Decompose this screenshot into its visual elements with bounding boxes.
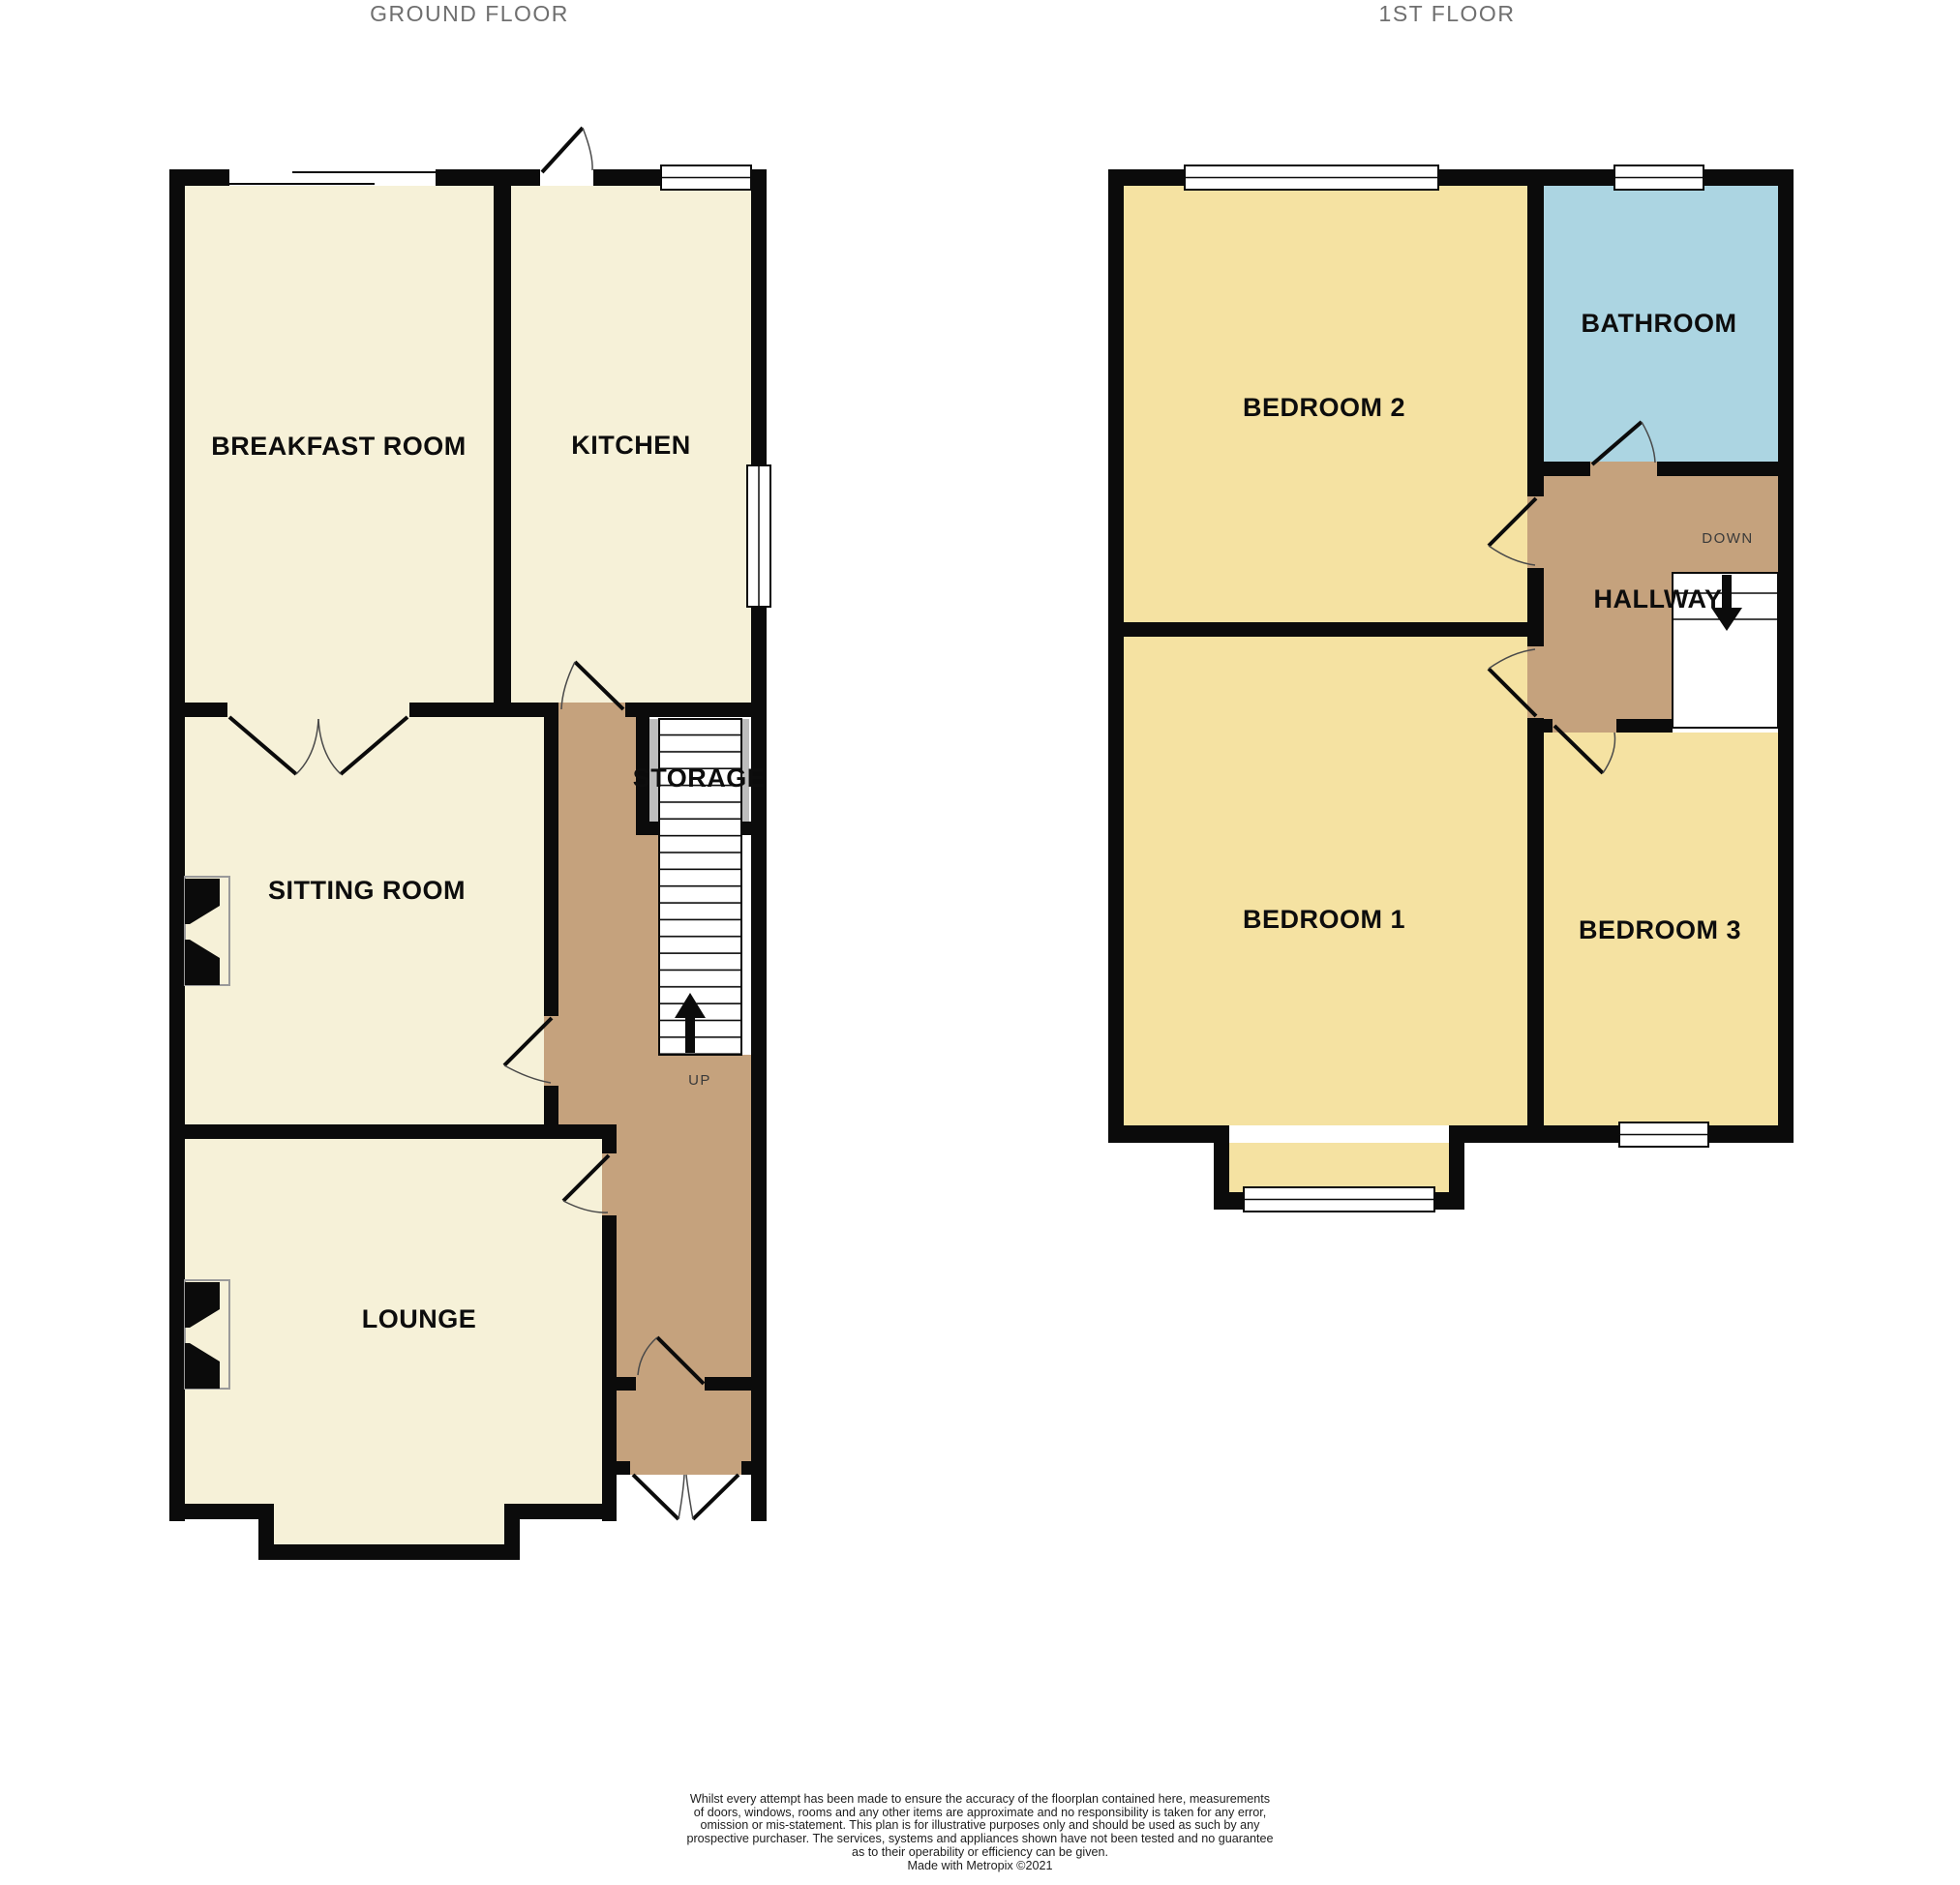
room-bedroom1 <box>1124 637 1527 1125</box>
wall-segment <box>751 169 767 465</box>
wall-segment <box>617 1461 630 1475</box>
room-label-bedroom2: BEDROOM 2 <box>1243 393 1405 422</box>
room-label-sitting: SITTING ROOM <box>268 876 466 905</box>
up-arrow-icon <box>685 1016 695 1053</box>
wall-segment <box>741 1461 751 1475</box>
disclaimer-line: Whilst every attempt has been made to en… <box>0 1793 1960 1807</box>
disclaimer-text: Whilst every attempt has been made to en… <box>0 1793 1960 1872</box>
room-sitting <box>185 717 544 1124</box>
room-lounge-bay <box>274 1504 504 1544</box>
wall-segment <box>1434 1192 1464 1210</box>
wall-segment <box>602 1139 617 1153</box>
first-floor-plan: 1ST FLOOR <box>1108 1 1794 1212</box>
wall-segment <box>1464 1125 1619 1143</box>
wall-segment <box>1527 568 1544 646</box>
wall-segment <box>1527 718 1544 1125</box>
wall-segment <box>1124 622 1527 637</box>
wall-segment <box>625 703 767 717</box>
stair-label-up: UP <box>688 1072 711 1089</box>
wall-segment <box>520 1504 617 1519</box>
wall-segment <box>504 1504 520 1560</box>
wall-segment <box>409 703 558 717</box>
room-hallway-ground <box>558 717 636 1124</box>
wall-segment <box>169 169 229 186</box>
room-label-bathroom: BATHROOM <box>1582 309 1737 338</box>
disclaimer-line: omission or mis-statement. This plan is … <box>0 1819 1960 1833</box>
ground-floor-plan: GROUND FLOOR <box>169 1 770 1560</box>
wall-segment <box>1616 719 1673 733</box>
stair-label-down: DOWN <box>1702 530 1754 547</box>
wall-segment <box>1527 462 1590 476</box>
wall-segment <box>602 1377 636 1391</box>
wall-segment <box>1438 169 1614 186</box>
wall-segment <box>636 822 660 835</box>
wall-segment <box>1708 1125 1794 1143</box>
room-label-bedroom1: BEDROOM 1 <box>1243 905 1405 934</box>
room-label-lounge: LOUNGE <box>362 1304 477 1333</box>
room-label-hallway: HALLWAY <box>1593 584 1722 613</box>
room-label-breakfast: BREAKFAST ROOM <box>211 432 467 461</box>
wall-segment <box>169 1504 274 1519</box>
room-hallway-first <box>1544 476 1778 573</box>
wall-segment <box>544 717 558 1016</box>
wall-segment <box>705 1377 751 1391</box>
wall-segment <box>494 169 511 717</box>
wall-segment <box>593 169 661 186</box>
wall-segment <box>1108 169 1124 1143</box>
disclaimer-line: prospective purchaser. The services, sys… <box>0 1833 1960 1846</box>
wall-segment <box>169 169 185 1521</box>
opening-kitchen-door <box>558 703 625 717</box>
room-label-storage: STORAGE <box>633 763 766 793</box>
wall-segment <box>436 169 540 186</box>
floorplan-canvas: GROUND FLOOR <box>0 0 1960 1885</box>
wall-segment <box>169 1124 617 1139</box>
room-hallway-ground <box>659 1055 751 1124</box>
wall-segment <box>1527 169 1544 496</box>
wall-segment <box>1214 1192 1244 1210</box>
disclaimer-line: of doors, windows, rooms and any other i… <box>0 1807 1960 1820</box>
wall-segment <box>1544 719 1553 733</box>
wall-segment <box>739 822 767 835</box>
ground-floor-title: GROUND FLOOR <box>370 1 569 26</box>
opening-bathroom-door <box>1590 462 1657 476</box>
wall-segment <box>1108 1125 1214 1143</box>
wall-segment <box>1108 169 1185 186</box>
room-label-bedroom3: BEDROOM 3 <box>1579 915 1741 944</box>
wall-segment <box>169 703 227 717</box>
room-hallway-ground <box>617 1124 751 1461</box>
first-floor-title: 1ST FLOOR <box>1379 1 1516 26</box>
wall-segment <box>1778 169 1794 1143</box>
door-front-double <box>633 1475 739 1519</box>
opening-double-door <box>227 703 409 717</box>
room-label-kitchen: KITCHEN <box>571 431 691 460</box>
door-kitchen-exterior <box>542 128 592 172</box>
opening-inner-front-door <box>636 1377 705 1391</box>
opening-sitting-door <box>544 1016 558 1086</box>
credit-line: Made with Metropix ©2021 <box>0 1860 1960 1873</box>
room-hallway-ground <box>636 835 659 1124</box>
opening-lounge-door <box>602 1153 617 1215</box>
wall-segment <box>751 607 767 1521</box>
disclaimer-line: as to their operability or efficiency ca… <box>0 1846 1960 1860</box>
opening-bedroom3-door <box>1553 719 1616 733</box>
wall-segment <box>258 1544 520 1560</box>
room-bedroom1-bay <box>1229 1143 1449 1192</box>
opening-front-door <box>630 1461 741 1475</box>
wall-segment <box>602 1215 617 1521</box>
down-arrow-icon <box>1722 575 1732 610</box>
wall-segment <box>1657 462 1778 476</box>
